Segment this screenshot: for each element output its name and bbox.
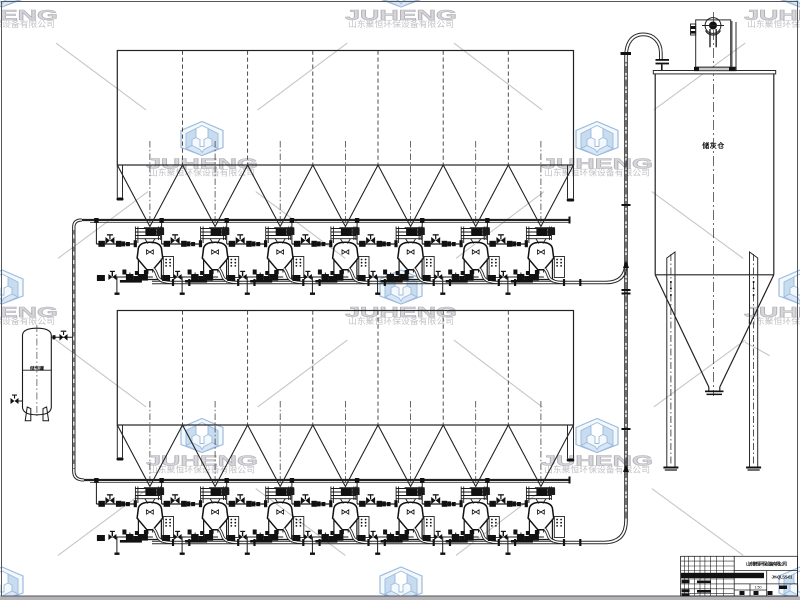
svg-text:1:50: 1:50 [755,586,762,590]
svg-text:储气罐: 储气罐 [30,365,44,372]
svg-text:储灰仓: 储灰仓 [701,141,725,150]
svg-text:山东聚恒环保设备有限公司: 山东聚恒环保设备有限公司 [746,560,787,567]
svg-text:JH-QLSS-01: JH-QLSS-01 [772,574,794,579]
